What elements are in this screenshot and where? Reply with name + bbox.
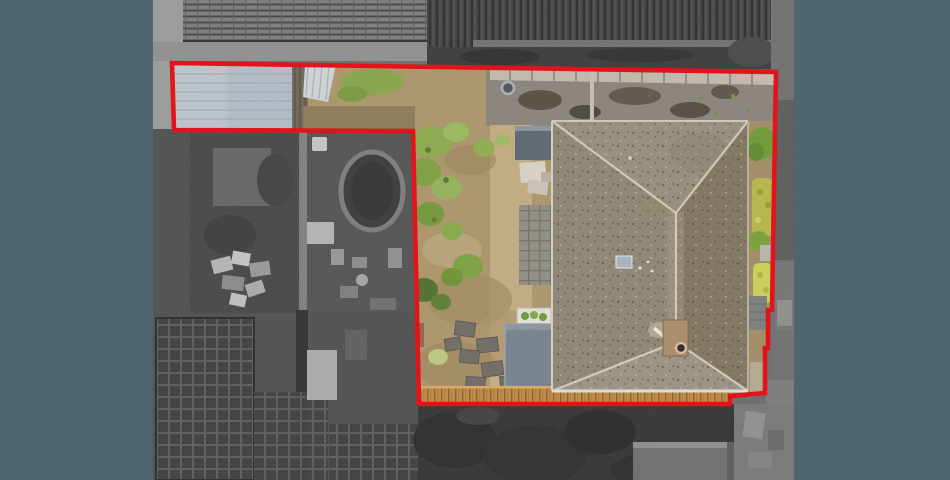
aerial-photo xyxy=(153,0,794,480)
aerial-photo-canvas xyxy=(153,0,794,480)
property-aerial-viewer xyxy=(0,0,950,480)
